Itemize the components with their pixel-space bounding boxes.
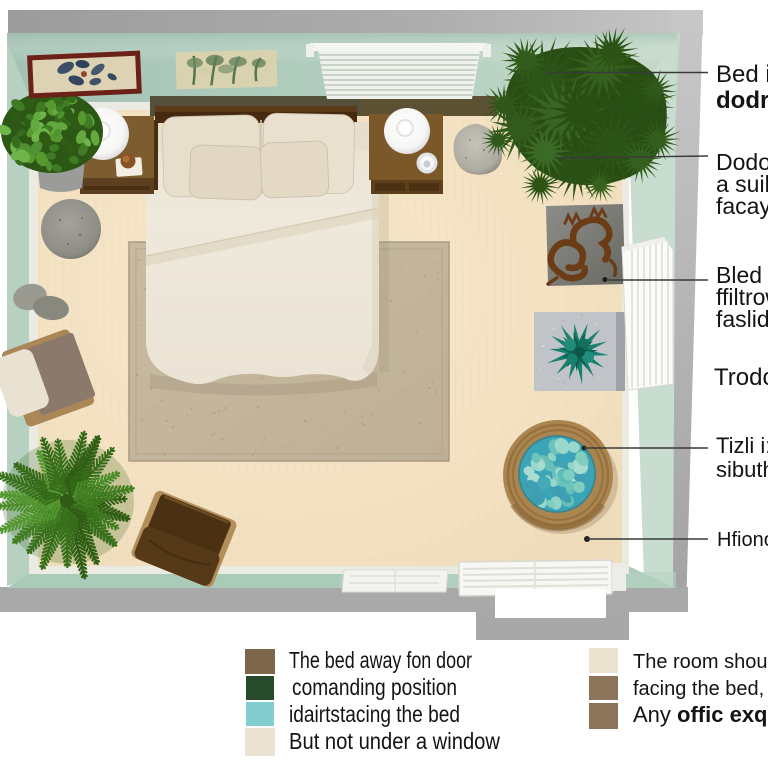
- svg-text:But not under a window: But not under a window: [289, 728, 500, 754]
- svg-text:dodrod: dodrod: [716, 87, 768, 114]
- svg-text:Hfiono: Hfiono: [717, 529, 768, 551]
- svg-text:Any offic exqu: Any offic exqu: [633, 702, 768, 727]
- svg-text:The room should: The room should: [633, 651, 768, 673]
- svg-text:facing the bed,: facing the bed,: [633, 678, 764, 700]
- svg-text:comanding position: comanding position: [292, 674, 457, 700]
- svg-text:faslida: faslida: [716, 306, 768, 332]
- svg-text:The bed away fon door: The bed away fon door: [289, 647, 472, 673]
- svg-text:sibuth: sibuth: [716, 457, 768, 482]
- svg-text:facay: facay: [716, 193, 768, 219]
- svg-text:Bed in: Bed in: [716, 61, 768, 88]
- svg-text:Trodo: Trodo: [714, 364, 768, 391]
- svg-text:Tizli i:: Tizli i:: [716, 433, 768, 458]
- svg-text:idairtstacing the bed: idairtstacing the bed: [289, 701, 460, 727]
